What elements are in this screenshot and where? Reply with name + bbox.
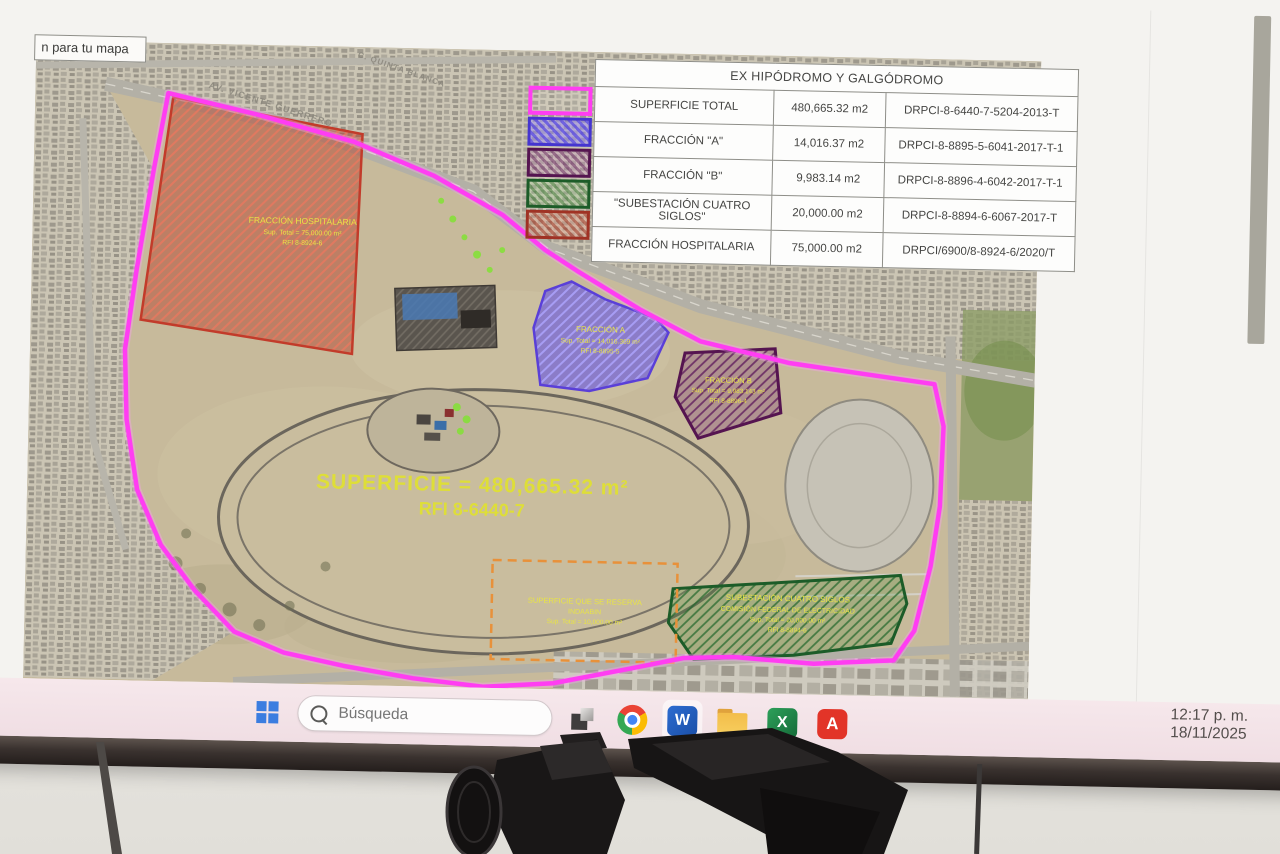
svg-text:FRACCIÓN A: FRACCIÓN A: [576, 325, 626, 335]
chrome-button[interactable]: [612, 698, 653, 743]
task-view-icon: [571, 708, 593, 730]
parcel-name: SUPERFICIE TOTAL: [594, 87, 774, 126]
search-input[interactable]: [336, 704, 520, 728]
svg-text:FRACCIÓN B: FRACCIÓN B: [705, 375, 752, 385]
parcel-area: 75,000.00 m2: [770, 230, 883, 267]
map-tooltip: n para tu mapa: [34, 34, 147, 62]
svg-text:RFI 8-8895-5: RFI 8-8895-5: [581, 348, 620, 356]
parcel-name: FRACCIÓN "A": [594, 121, 774, 160]
windows-logo-icon: [256, 701, 278, 723]
word-button[interactable]: W: [662, 699, 703, 744]
parcel-info-panel: EX HIPÓDROMO Y GALGÓDROMO SUPERFICIE TOT…: [525, 58, 1079, 272]
parcel-area: 480,665.32 m2: [773, 90, 886, 127]
legend-column: [525, 58, 593, 262]
file-explorer-button[interactable]: [712, 700, 753, 745]
legend-swatch-superficie-total: [528, 86, 593, 116]
legend-swatch-hospitalaria: [525, 210, 590, 240]
map-tooltip-text: n para tu mapa: [41, 39, 129, 56]
clock-date: 18/11/2025: [1170, 724, 1280, 745]
legend-swatch-fraccion-b: [527, 148, 592, 178]
start-button[interactable]: [247, 690, 288, 735]
chrome-icon: [617, 705, 648, 736]
excel-icon: X: [767, 708, 798, 739]
task-view-button[interactable]: [562, 696, 603, 741]
parcel-id: DRPCI-8-8896-4-6042-2017-T-1: [884, 163, 1077, 202]
taskbar-search[interactable]: [297, 695, 553, 736]
svg-text:INDAABIN: INDAABIN: [568, 609, 601, 617]
svg-text:RFI 8-8924-6: RFI 8-8924-6: [282, 239, 322, 247]
search-icon: [310, 705, 327, 722]
monitor-screen: FRACCIÓN HOSPITALARIA Sup. Total = 75,00…: [0, 0, 1280, 791]
parcel-area: 14,016.37 m2: [773, 125, 886, 162]
parcel-name: "SUBESTACIÓN CUATRO SIGLOS": [592, 191, 772, 230]
parcel-id: DRPCI-8-8894-6-6067-2017-T: [883, 198, 1076, 237]
parcel-id: DRPCI/6900/8-8924-6/2020/T: [882, 233, 1075, 272]
svg-text:RFI 8-6440-7: RFI 8-6440-7: [418, 498, 524, 520]
svg-text:RFI 8-8896-4: RFI 8-8896-4: [709, 397, 747, 405]
taskbar-clock[interactable]: 12:17 p. m. 18/11/2025: [1170, 706, 1280, 745]
page-divider: [1136, 11, 1151, 703]
parcel-area: 20,000.00 m2: [771, 195, 884, 232]
parcel-id: DRPCI-8-6440-7-5204-2013-T: [885, 93, 1078, 132]
vertical-scrollbar[interactable]: [1247, 16, 1271, 344]
parcel-id: DRPCI-8-8895-5-6041-2017-T-1: [885, 128, 1078, 167]
word-icon: W: [667, 706, 698, 737]
svg-text:RFI 8-8894-6: RFI 8-8894-6: [768, 627, 807, 635]
svg-text:Sup. Total = 9,983.143 m²: Sup. Total = 9,983.143 m²: [692, 387, 765, 396]
acrobat-button[interactable]: A: [812, 702, 853, 747]
parcel-name: FRACCIÓN "B": [593, 156, 773, 195]
word-active-indicator: [674, 744, 692, 747]
excel-button[interactable]: X: [762, 701, 803, 746]
legend-swatch-subestacion: [526, 179, 591, 209]
grandstand-building: [395, 285, 497, 350]
folder-icon: [717, 712, 747, 736]
legend-swatch-fraccion-a: [527, 117, 592, 147]
parcel-area: 9,983.14 m2: [772, 160, 885, 197]
parcel-table: EX HIPÓDROMO Y GALGÓDROMO SUPERFICIE TOT…: [591, 59, 1079, 272]
parcel-name: FRACCIÓN HOSPITALARIA: [591, 226, 771, 265]
acrobat-icon: A: [817, 709, 848, 740]
